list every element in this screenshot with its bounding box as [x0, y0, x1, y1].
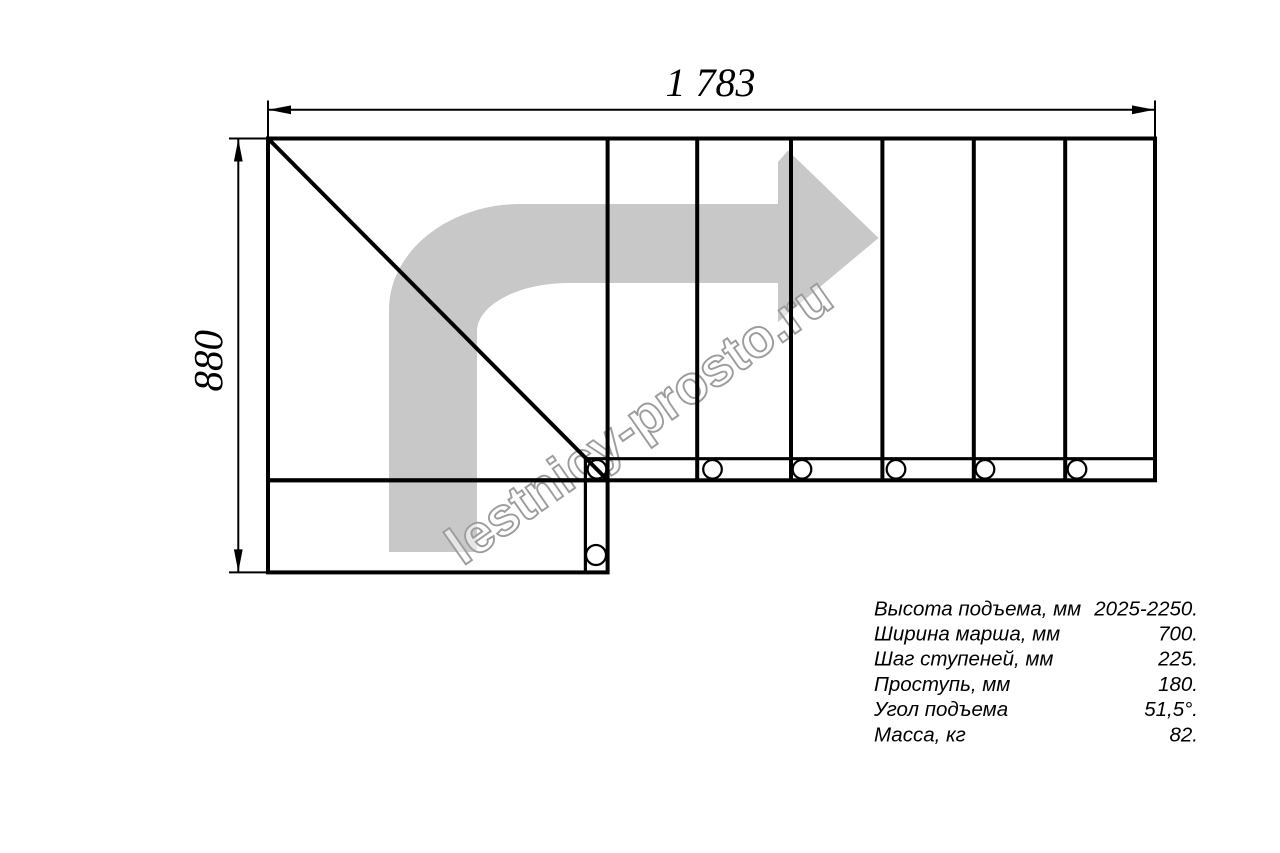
svg-text:Угол подъема: Угол подъема	[873, 698, 1008, 721]
svg-text:lestnicy-prosto.ru: lestnicy-prosto.ru	[435, 266, 843, 577]
svg-text:180.: 180.	[1158, 673, 1198, 696]
svg-text:1 783: 1 783	[666, 60, 756, 105]
svg-text:2025-2250.: 2025-2250.	[1093, 597, 1198, 620]
svg-text:Высота подъема, мм: Высота подъема, мм	[874, 597, 1081, 620]
svg-text:Проступь, мм: Проступь, мм	[874, 673, 1010, 696]
svg-text:700.: 700.	[1158, 623, 1198, 646]
svg-text:Шаг ступеней, мм: Шаг ступеней, мм	[874, 648, 1053, 671]
svg-text:880: 880	[185, 330, 231, 392]
svg-text:Масса, кг: Масса, кг	[874, 723, 966, 746]
svg-text:82.: 82.	[1170, 723, 1199, 746]
svg-text:Ширина марша, мм: Ширина марша, мм	[874, 623, 1060, 646]
svg-text:225.: 225.	[1157, 648, 1198, 671]
svg-text:51,5°.: 51,5°.	[1144, 698, 1198, 721]
